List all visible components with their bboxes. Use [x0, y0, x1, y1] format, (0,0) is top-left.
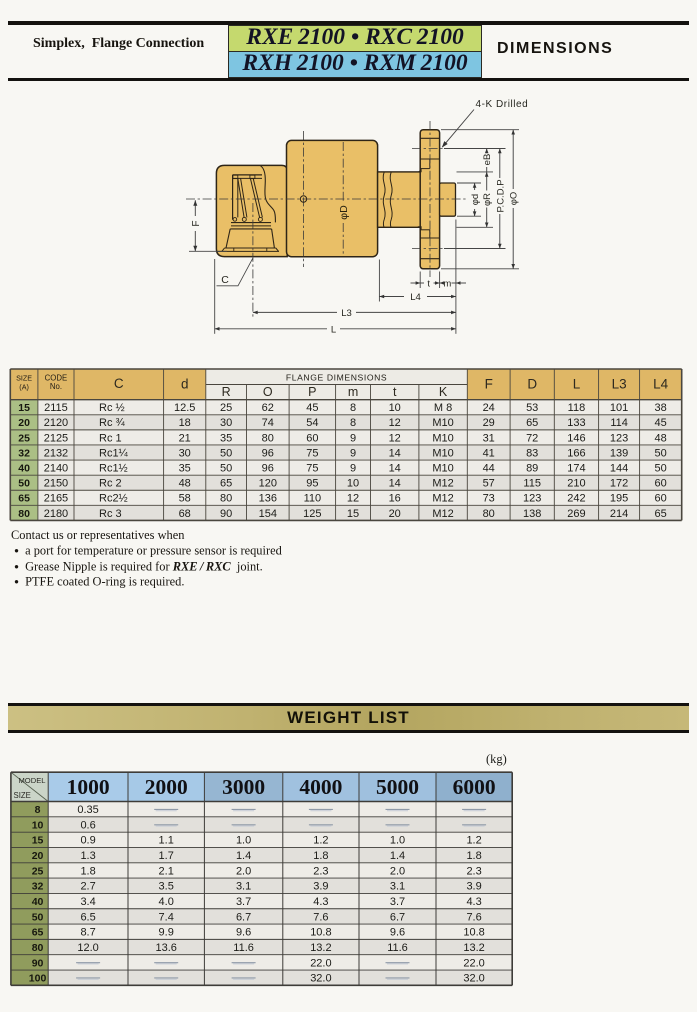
svg-text:50: 50 — [655, 447, 667, 459]
svg-text:32.0: 32.0 — [463, 973, 484, 985]
svg-text:2.7: 2.7 — [80, 881, 95, 893]
svg-text:3.1: 3.1 — [390, 881, 405, 893]
svg-text:12: 12 — [347, 493, 359, 505]
svg-text:M 8: M 8 — [434, 402, 452, 414]
svg-text:d: d — [181, 377, 189, 392]
svg-text:Rc ½: Rc ½ — [99, 402, 125, 414]
svg-text:58: 58 — [179, 493, 191, 505]
svg-text:2125: 2125 — [44, 432, 68, 444]
svg-text:24: 24 — [483, 402, 495, 414]
svg-text:90: 90 — [32, 957, 44, 969]
svg-text:50: 50 — [220, 463, 232, 475]
svg-text:m: m — [348, 385, 358, 399]
svg-text:174: 174 — [567, 463, 585, 475]
svg-text:D: D — [527, 377, 537, 392]
svg-text:(A): (A) — [19, 383, 29, 392]
svg-text:72: 72 — [526, 432, 538, 444]
svg-text:M12: M12 — [432, 508, 453, 520]
svg-text:1000: 1000 — [67, 775, 110, 799]
svg-text:25: 25 — [32, 865, 44, 877]
svg-text:139: 139 — [610, 447, 628, 459]
svg-text:13.2: 13.2 — [463, 942, 484, 954]
svg-text:F: F — [485, 377, 493, 392]
svg-text:25: 25 — [220, 402, 232, 414]
svg-text:14: 14 — [389, 463, 401, 475]
svg-text:210: 210 — [567, 478, 585, 490]
svg-text:15: 15 — [32, 835, 44, 847]
svg-text:3.9: 3.9 — [466, 881, 481, 893]
svg-text:123: 123 — [523, 493, 541, 505]
svg-text:29: 29 — [483, 417, 495, 429]
svg-text:32: 32 — [32, 881, 44, 893]
svg-text:25: 25 — [18, 432, 30, 444]
svg-text:22.0: 22.0 — [310, 957, 331, 969]
svg-text:Rc 2: Rc 2 — [99, 478, 122, 490]
svg-text:10.8: 10.8 — [310, 927, 331, 939]
svg-text:12.0: 12.0 — [77, 942, 98, 954]
svg-text:MODEL: MODEL — [18, 776, 45, 785]
svg-text:21: 21 — [179, 432, 191, 444]
svg-text:114: 114 — [610, 417, 628, 429]
svg-text:P: P — [308, 385, 316, 399]
svg-text:2.3: 2.3 — [466, 865, 481, 877]
svg-text:Rc1¼: Rc1¼ — [99, 447, 129, 459]
svg-text:1.2: 1.2 — [466, 835, 481, 847]
svg-text:75: 75 — [306, 463, 318, 475]
svg-text:P.C.D.P: P.C.D.P — [495, 179, 506, 212]
svg-text:φD: φD — [338, 205, 350, 220]
svg-text:40: 40 — [32, 896, 44, 908]
svg-text:214: 214 — [610, 508, 628, 520]
svg-text:1.7: 1.7 — [159, 850, 174, 862]
svg-text:15: 15 — [347, 508, 359, 520]
svg-text:O: O — [263, 385, 273, 399]
svg-text:φR: φR — [482, 193, 493, 206]
svg-text:80: 80 — [483, 508, 495, 520]
svg-text:144: 144 — [610, 463, 628, 475]
svg-text:11.6: 11.6 — [233, 942, 254, 954]
svg-text:10: 10 — [389, 402, 401, 414]
svg-text:6.7: 6.7 — [390, 911, 405, 923]
svg-text:30: 30 — [179, 447, 191, 459]
svg-text:31: 31 — [483, 432, 495, 444]
svg-text:8: 8 — [35, 804, 41, 816]
svg-text:1.2: 1.2 — [313, 835, 328, 847]
svg-text:14: 14 — [389, 478, 401, 490]
svg-text:74: 74 — [262, 417, 274, 429]
svg-text:65: 65 — [32, 927, 44, 939]
svg-text:38: 38 — [655, 402, 667, 414]
svg-text:195: 195 — [610, 493, 628, 505]
svg-text:φd: φd — [470, 194, 481, 205]
svg-text:40: 40 — [18, 463, 30, 475]
svg-text:M12: M12 — [432, 478, 453, 490]
svg-text:m: m — [443, 279, 451, 290]
svg-text:Rc2½: Rc2½ — [99, 493, 128, 505]
svg-text:1.8: 1.8 — [466, 850, 481, 862]
svg-text:32.0: 32.0 — [310, 973, 331, 985]
svg-text:2165: 2165 — [44, 493, 68, 505]
svg-text:83: 83 — [526, 447, 538, 459]
svg-text:57: 57 — [483, 478, 495, 490]
svg-text:10.8: 10.8 — [463, 927, 484, 939]
svg-text:9: 9 — [350, 447, 356, 459]
svg-text:No.: No. — [50, 382, 62, 391]
svg-text:1.4: 1.4 — [390, 850, 405, 862]
svg-text:L4: L4 — [410, 292, 421, 303]
svg-text:53: 53 — [526, 402, 538, 414]
svg-text:L3: L3 — [612, 377, 627, 392]
svg-text:3.5: 3.5 — [159, 881, 174, 893]
svg-text:7.4: 7.4 — [159, 911, 174, 923]
svg-text:Rc 1: Rc 1 — [99, 432, 122, 444]
svg-text:13.2: 13.2 — [310, 942, 331, 954]
svg-text:4.3: 4.3 — [313, 896, 328, 908]
svg-text:M10: M10 — [432, 432, 453, 444]
svg-text:R: R — [222, 385, 231, 399]
svg-text:50: 50 — [655, 463, 667, 475]
svg-text:K: K — [439, 385, 448, 399]
svg-text:154: 154 — [259, 508, 277, 520]
svg-text:10: 10 — [347, 478, 359, 490]
svg-text:2150: 2150 — [44, 478, 68, 490]
svg-text:50: 50 — [18, 478, 30, 490]
svg-text:L: L — [331, 324, 336, 335]
svg-text:7.6: 7.6 — [313, 911, 328, 923]
svg-text:14: 14 — [389, 447, 401, 459]
svg-text:50: 50 — [32, 911, 44, 923]
svg-text:2132: 2132 — [44, 447, 68, 459]
svg-text:16: 16 — [389, 493, 401, 505]
svg-text:L4: L4 — [653, 377, 669, 392]
svg-text:68: 68 — [179, 508, 191, 520]
svg-text:138: 138 — [523, 508, 541, 520]
svg-text:65: 65 — [526, 417, 538, 429]
svg-text:80: 80 — [220, 493, 232, 505]
svg-text:35: 35 — [220, 432, 232, 444]
svg-text:60: 60 — [306, 432, 318, 444]
svg-text:3.7: 3.7 — [390, 896, 405, 908]
svg-text:65: 65 — [18, 493, 30, 505]
svg-text:2.0: 2.0 — [390, 865, 405, 877]
svg-text:C: C — [221, 274, 229, 286]
svg-text:96: 96 — [262, 463, 274, 475]
svg-text:120: 120 — [259, 478, 277, 490]
svg-text:9: 9 — [350, 432, 356, 444]
svg-text:9: 9 — [350, 463, 356, 475]
svg-text:Rc ¾: Rc ¾ — [99, 417, 126, 429]
svg-text:18: 18 — [179, 417, 191, 429]
svg-text:2180: 2180 — [44, 508, 68, 520]
svg-text:62: 62 — [262, 402, 274, 414]
svg-text:80: 80 — [18, 508, 30, 520]
svg-text:L: L — [573, 377, 581, 392]
svg-text:3.4: 3.4 — [80, 896, 95, 908]
svg-text:t: t — [393, 385, 397, 399]
svg-text:20: 20 — [389, 508, 401, 520]
svg-text:2120: 2120 — [44, 417, 68, 429]
svg-text:30: 30 — [220, 417, 232, 429]
svg-text:8.7: 8.7 — [80, 927, 95, 939]
svg-text:M10: M10 — [432, 463, 453, 475]
svg-text:0.35: 0.35 — [77, 804, 98, 816]
svg-text:2140: 2140 — [44, 463, 68, 475]
svg-text:1.8: 1.8 — [80, 865, 95, 877]
svg-text:3.7: 3.7 — [236, 896, 251, 908]
svg-text:M12: M12 — [432, 493, 453, 505]
svg-text:45: 45 — [655, 417, 667, 429]
svg-text:166: 166 — [567, 447, 585, 459]
svg-text:73: 73 — [483, 493, 495, 505]
svg-text:80: 80 — [32, 942, 44, 954]
svg-text:136: 136 — [259, 493, 277, 505]
svg-text:0.9: 0.9 — [80, 835, 95, 847]
svg-text:89: 89 — [526, 463, 538, 475]
svg-text:1.0: 1.0 — [236, 835, 251, 847]
svg-text:1.1: 1.1 — [159, 835, 174, 847]
svg-text:M10: M10 — [432, 447, 453, 459]
svg-text:2.1: 2.1 — [159, 865, 174, 877]
svg-text:60: 60 — [655, 478, 667, 490]
svg-text:133: 133 — [567, 417, 585, 429]
svg-text:48: 48 — [179, 478, 191, 490]
svg-text:65: 65 — [655, 508, 667, 520]
svg-text:1.0: 1.0 — [390, 835, 405, 847]
svg-text:6000: 6000 — [453, 775, 496, 799]
svg-text:20: 20 — [32, 850, 44, 862]
svg-text:44: 44 — [483, 463, 495, 475]
svg-text:20: 20 — [18, 417, 30, 429]
svg-text:101: 101 — [610, 402, 628, 414]
svg-text:4000: 4000 — [299, 775, 342, 799]
svg-text:75: 75 — [306, 447, 318, 459]
svg-text:9.9: 9.9 — [159, 927, 174, 939]
svg-text:t: t — [427, 278, 430, 289]
svg-text:96: 96 — [262, 447, 274, 459]
svg-text:2000: 2000 — [145, 775, 188, 799]
svg-text:6.5: 6.5 — [80, 911, 95, 923]
svg-text:22.0: 22.0 — [463, 957, 484, 969]
svg-text:90: 90 — [220, 508, 232, 520]
svg-text:35: 35 — [179, 463, 191, 475]
svg-text:M10: M10 — [432, 417, 453, 429]
svg-text:9.6: 9.6 — [236, 927, 251, 939]
svg-text:41: 41 — [483, 447, 495, 459]
svg-text:8: 8 — [350, 402, 356, 414]
svg-text:SIZE: SIZE — [16, 374, 32, 383]
svg-text:1.3: 1.3 — [80, 850, 95, 862]
svg-text:3.9: 3.9 — [313, 881, 328, 893]
svg-text:269: 269 — [567, 508, 585, 520]
svg-text:123: 123 — [610, 432, 628, 444]
svg-text:9.6: 9.6 — [390, 927, 405, 939]
svg-text:12: 12 — [389, 432, 401, 444]
svg-text:115: 115 — [523, 478, 541, 490]
svg-text:3000: 3000 — [222, 775, 265, 799]
svg-text:4.3: 4.3 — [466, 896, 481, 908]
svg-text:5000: 5000 — [376, 775, 419, 799]
svg-text:7.6: 7.6 — [466, 911, 481, 923]
svg-text:95: 95 — [306, 478, 318, 490]
svg-text:1.4: 1.4 — [236, 850, 251, 862]
svg-text:eB: eB — [482, 154, 493, 166]
svg-text:45: 45 — [306, 402, 318, 414]
svg-text:110: 110 — [304, 493, 322, 505]
svg-text:10: 10 — [32, 819, 44, 831]
svg-text:118: 118 — [568, 402, 586, 414]
svg-text:32: 32 — [18, 447, 30, 459]
svg-text:4-K Drilled: 4-K Drilled — [476, 99, 529, 110]
svg-text:Rc1½: Rc1½ — [99, 463, 128, 475]
svg-text:13.6: 13.6 — [155, 942, 176, 954]
svg-text:8: 8 — [350, 417, 356, 429]
svg-text:60: 60 — [655, 493, 667, 505]
svg-text:SIZE: SIZE — [14, 791, 31, 800]
svg-text:4.0: 4.0 — [159, 896, 174, 908]
svg-text:15: 15 — [18, 402, 30, 414]
svg-text:54: 54 — [306, 417, 318, 429]
svg-text:125: 125 — [303, 508, 321, 520]
svg-text:FLANGE DIMENSIONS: FLANGE DIMENSIONS — [286, 372, 387, 382]
svg-text:80: 80 — [262, 432, 274, 444]
svg-text:3.1: 3.1 — [236, 881, 251, 893]
svg-text:242: 242 — [567, 493, 585, 505]
svg-text:2.0: 2.0 — [236, 865, 251, 877]
svg-text:12.5: 12.5 — [174, 402, 195, 414]
svg-text:6.7: 6.7 — [236, 911, 251, 923]
svg-text:12: 12 — [389, 417, 401, 429]
svg-text:172: 172 — [610, 478, 628, 490]
svg-text:2115: 2115 — [44, 402, 68, 414]
svg-text:C: C — [114, 376, 124, 391]
svg-text:L3: L3 — [341, 308, 352, 319]
svg-text:F: F — [191, 220, 202, 226]
svg-text:50: 50 — [220, 447, 232, 459]
svg-text:1.8: 1.8 — [313, 850, 328, 862]
svg-text:100: 100 — [29, 973, 47, 985]
svg-text:146: 146 — [567, 432, 585, 444]
svg-text:φO: φO — [509, 192, 520, 206]
svg-text:65: 65 — [220, 478, 232, 490]
svg-text:11.6: 11.6 — [387, 942, 408, 954]
svg-text:2.3: 2.3 — [313, 865, 328, 877]
svg-text:48: 48 — [655, 432, 667, 444]
svg-text:Rc 3: Rc 3 — [99, 508, 122, 520]
svg-text:0.6: 0.6 — [80, 819, 95, 831]
